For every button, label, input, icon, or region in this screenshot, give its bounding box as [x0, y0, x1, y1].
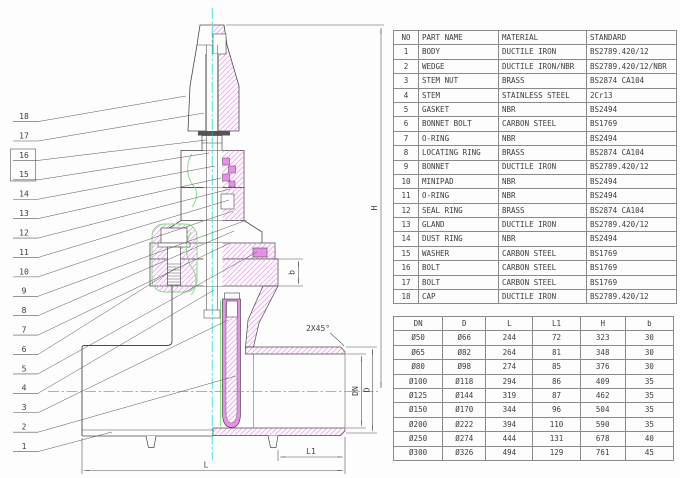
- callout-label: 4: [22, 384, 27, 393]
- dims-table-cell: 590: [580, 417, 625, 431]
- parts-table-row: 16BOLTCARBON STEELBS1769: [394, 261, 677, 275]
- dims-table-header-cell: D: [443, 317, 486, 331]
- dims-table-cell: Ø50: [394, 331, 443, 345]
- cap-inner-notch: [213, 34, 226, 54]
- parts-table-row: 3STEM NUTBRASSBS2874 CA104: [394, 74, 677, 88]
- parts-table-header-cell: NO: [394, 31, 419, 45]
- dims-table-cell: 72: [533, 331, 580, 345]
- dims-table-cell: Ø326: [443, 446, 486, 460]
- parts-table-row: 2WEDGEDUCTILE IRON/NBRBS2789.420/12/NBR: [394, 59, 677, 73]
- dims-table-cell: Ø82: [443, 345, 486, 359]
- parts-table-cell: BRASS: [499, 203, 587, 217]
- callout-label: 5: [22, 364, 27, 373]
- parts-table-cell: SEAL RING: [419, 203, 499, 217]
- callout-label: 2: [22, 423, 27, 432]
- socket-bottom-wall: [213, 428, 345, 436]
- dims-table-cell: 35: [625, 417, 673, 431]
- parts-table-cell: O-RING: [419, 131, 499, 145]
- parts-table-cell: 9: [394, 160, 419, 174]
- dims-table-cell: Ø222: [443, 417, 486, 431]
- callout-leader-line: [38, 189, 230, 238]
- parts-table-cell: BS1769: [587, 261, 677, 275]
- chamfer-leader: [330, 333, 344, 346]
- parts-table-cell: NBR: [499, 102, 587, 116]
- callout-label: 18: [19, 112, 29, 121]
- callout-label: 6: [22, 345, 27, 354]
- dims-table-cell: 30: [625, 331, 673, 345]
- parts-table-cell: BS1769: [587, 117, 677, 131]
- callout-label: 13: [19, 209, 29, 218]
- parts-table-header-cell: PART NAME: [419, 31, 499, 45]
- dims-table-cell: Ø300: [394, 446, 443, 460]
- dims-table-header-cell: DN: [394, 317, 443, 331]
- dims-table-cell: Ø80: [394, 360, 443, 374]
- parts-table-cell: STEM: [419, 88, 499, 102]
- stem-nut: [227, 301, 238, 317]
- parts-table-header-row: NOPART NAMEMATERIALSTANDARD: [394, 31, 677, 45]
- cap-collar: [198, 131, 230, 136]
- parts-table-cell: BS2789.420/12: [587, 290, 677, 304]
- dims-table-cell: 40: [625, 432, 673, 446]
- dims-table-cell: 131: [533, 432, 580, 446]
- dim-label-L1: L1: [306, 447, 316, 456]
- parts-table-cell: NBR: [499, 232, 587, 246]
- wedge: [221, 293, 241, 428]
- parts-table-cell: 1: [394, 45, 419, 59]
- dims-table-cell: Ø125: [394, 388, 443, 402]
- parts-table-cell: CARBON STEEL: [499, 117, 587, 131]
- parts-table-cell: DUCTILE IRON: [499, 160, 587, 174]
- o-ring-lower: [229, 181, 235, 187]
- dims-table-cell: 494: [486, 446, 533, 460]
- dims-table-header-cell: H: [580, 317, 625, 331]
- parts-table-cell: DUCTILE IRON: [499, 45, 587, 59]
- dims-table-cell: Ø65: [394, 345, 443, 359]
- parts-table-cell: BS1769: [587, 275, 677, 289]
- chamfer-note: 2X45°: [306, 324, 330, 333]
- callout-15: 15: [13, 153, 209, 180]
- parts-table-cell: 11: [394, 189, 419, 203]
- parts-table-cell: GASKET: [419, 102, 499, 116]
- dims-table-row: Ø150Ø1703449650435: [394, 403, 674, 417]
- dims-table-cell: 45: [625, 446, 673, 460]
- dim-label-b: b: [288, 270, 297, 275]
- callout-label: 7: [22, 326, 27, 335]
- callout-leader-line: [38, 290, 214, 393]
- parts-list-table: NOPART NAMEMATERIALSTANDARD1BODYDUCTILE …: [393, 30, 677, 304]
- callout-17: 17: [13, 113, 204, 141]
- dims-table-cell: 761: [580, 446, 625, 460]
- dims-table-header-cell: b: [625, 317, 673, 331]
- dims-table-cell: 85: [533, 360, 580, 374]
- callout-label: 9: [22, 287, 27, 296]
- dims-table-cell: 348: [580, 345, 625, 359]
- body-foot-left: [146, 436, 156, 448]
- parts-table-header-cell: MATERIAL: [499, 31, 587, 45]
- parts-table-cell: BONNET BOLT: [419, 117, 499, 131]
- parts-table-cell: CARBON STEEL: [499, 261, 587, 275]
- dims-table-row: Ø50Ø662447232330: [394, 331, 674, 345]
- valve-cap: [188, 25, 239, 136]
- callout-label: 10: [19, 267, 29, 276]
- dims-table-row: Ø80Ø982748537630: [394, 360, 674, 374]
- callout-leader-line: [38, 243, 230, 335]
- parts-table-cell: BS2494: [587, 174, 677, 188]
- dims-table-cell: Ø118: [443, 374, 486, 388]
- parts-table-cell: BS2494: [587, 131, 677, 145]
- callout-leader-line: [38, 432, 112, 452]
- parts-table-row: 11O-RINGNBRBS2494: [394, 189, 677, 203]
- dims-table-cell: Ø274: [443, 432, 486, 446]
- parts-table-cell: NBR: [499, 174, 587, 188]
- valve-section-drawing: H b DN D L1 L 2X45° 18171615141312111098…: [0, 0, 390, 478]
- callout-label: 15: [19, 170, 29, 179]
- parts-table-cell: BS1769: [587, 246, 677, 260]
- callout-2: 2: [13, 376, 236, 432]
- parts-table-cell: 6: [394, 117, 419, 131]
- dims-table-row: Ø100Ø1182948640935: [394, 374, 674, 388]
- dims-table-cell: Ø170: [443, 403, 486, 417]
- parts-table-cell: BS2874 CA104: [587, 74, 677, 88]
- parts-table-cell: DUCTILE IRON/NBR: [499, 59, 587, 73]
- parts-table-row: 7O-RINGNBRBS2494: [394, 131, 677, 145]
- dims-table-cell: 462: [580, 388, 625, 402]
- dims-table-cell: Ø250: [394, 432, 443, 446]
- parts-table-cell: BS2494: [587, 232, 677, 246]
- parts-table-cell: MINIPAD: [419, 174, 499, 188]
- callout-3: 3: [13, 320, 228, 413]
- dims-table-cell: 110: [533, 417, 580, 431]
- callout-12: 12: [13, 189, 230, 238]
- dims-table-cell: 376: [580, 360, 625, 374]
- dims-table-cell: 344: [486, 403, 533, 417]
- parts-table-row: 14DUST RINGNBRBS2494: [394, 232, 677, 246]
- dims-table-row: Ø300Ø32649412976145: [394, 446, 674, 460]
- dims-table-cell: 96: [533, 403, 580, 417]
- parts-table-cell: 17: [394, 275, 419, 289]
- callout-16: 16: [13, 140, 206, 160]
- dims-table-cell: 323: [580, 331, 625, 345]
- parts-table-cell: BRASS: [499, 146, 587, 160]
- callout-leader-line: [38, 320, 228, 413]
- parts-table-cell: 7: [394, 131, 419, 145]
- socket-top-wall: [246, 347, 346, 354]
- parts-table-cell: DUST RING: [419, 232, 499, 246]
- dims-table-cell: Ø200: [394, 417, 443, 431]
- parts-table-row: 18CAPDUCTILE IRONBS2789.420/12: [394, 290, 677, 304]
- dims-table-row: Ø65Ø822648134830: [394, 345, 674, 359]
- dimension-chart-table: DNDLL1HbØ50Ø662447232330Ø65Ø822648134830…: [393, 316, 674, 461]
- dims-table-cell: 264: [486, 345, 533, 359]
- callout-label: 14: [19, 190, 29, 199]
- parts-table-cell: 4: [394, 88, 419, 102]
- seal-ring: [223, 174, 230, 181]
- dims-table-header-cell: L: [486, 317, 533, 331]
- wedge-core: [226, 303, 237, 423]
- parts-table-cell: BS2789.420/12/NBR: [587, 59, 677, 73]
- callout-label: 16: [19, 151, 29, 160]
- bolt-shank: [168, 247, 181, 285]
- parts-table-cell: WEDGE: [419, 59, 499, 73]
- dims-table-cell: Ø144: [443, 388, 486, 402]
- body-foot-right: [268, 436, 278, 448]
- dims-table-cell: 30: [625, 345, 673, 359]
- dims-table-cell: 444: [486, 432, 533, 446]
- dims-table-cell: 504: [580, 403, 625, 417]
- dims-table-cell: Ø66: [443, 331, 486, 345]
- parts-table-cell: BS2494: [587, 102, 677, 116]
- dims-table-cell: 35: [625, 374, 673, 388]
- parts-table-row: 15WASHERCARBON STEELBS1769: [394, 246, 677, 260]
- parts-table-row: 1BODYDUCTILE IRONBS2789.420/12: [394, 45, 677, 59]
- parts-table-row: 13GLANDDUCTILE IRONBS2789.420/12: [394, 218, 677, 232]
- parts-table-cell: 16: [394, 261, 419, 275]
- o-ring-upper: [229, 166, 236, 173]
- dims-table-cell: 35: [625, 388, 673, 402]
- parts-table-cell: 10: [394, 174, 419, 188]
- dims-table-row: Ø125Ø1443198746235: [394, 388, 674, 402]
- dims-table-header-cell: L1: [533, 317, 580, 331]
- parts-table-cell: 13: [394, 218, 419, 232]
- dim-label-L: L: [204, 461, 209, 470]
- dims-table-cell: 678: [580, 432, 625, 446]
- callout-label: 8: [22, 306, 27, 315]
- parts-table-cell: BS2789.420/12: [587, 160, 677, 174]
- parts-table-cell: 18: [394, 290, 419, 304]
- dims-table-cell: 81: [533, 345, 580, 359]
- callout-leader-line: [38, 96, 186, 122]
- parts-table-cell: BS2789.420/12: [587, 45, 677, 59]
- callout-1: 1: [13, 432, 112, 452]
- parts-table-cell: STAINLESS STEEL: [499, 88, 587, 102]
- parts-table-cell: BONNET: [419, 160, 499, 174]
- dims-table-row: Ø250Ø27444413167840: [394, 432, 674, 446]
- dims-table-cell: Ø150: [394, 403, 443, 417]
- parts-table-cell: BOLT: [419, 261, 499, 275]
- parts-table-row: 9BONNETDUCTILE IRONBS2789.420/12: [394, 160, 677, 174]
- dims-table-cell: 274: [486, 360, 533, 374]
- callout-label: 17: [19, 131, 29, 140]
- parts-table-cell: DUCTILE IRON: [499, 218, 587, 232]
- dims-table-header-row: DNDLL1Hb: [394, 317, 674, 331]
- parts-table-cell: 5: [394, 102, 419, 116]
- parts-table-cell: BS2789.420/12: [587, 218, 677, 232]
- bolt-head: [161, 228, 187, 243]
- dim-label-H: H: [370, 205, 379, 210]
- parts-table-cell: BS2874 CA104: [587, 203, 677, 217]
- dims-table-cell: 294: [486, 374, 533, 388]
- parts-table-row: 5GASKETNBRBS2494: [394, 102, 677, 116]
- callout-18: 18: [13, 96, 186, 122]
- parts-table-row: 8LOCATING RINGBRASSBS2874 CA104: [394, 146, 677, 160]
- parts-table-cell: BS2494: [587, 189, 677, 203]
- parts-table-header-cell: STANDARD: [587, 31, 677, 45]
- dims-table-cell: 87: [533, 388, 580, 402]
- parts-table-row: 4STEMSTAINLESS STEEL2Cr13: [394, 88, 677, 102]
- callout-label: 1: [22, 442, 27, 451]
- callout-label: 12: [19, 228, 29, 237]
- dims-table-cell: Ø98: [443, 360, 486, 374]
- parts-table-cell: BOLT: [419, 275, 499, 289]
- callout-leader-line: [38, 268, 176, 355]
- dims-table-row: Ø200Ø22239411059035: [394, 417, 674, 431]
- parts-table-cell: 8: [394, 146, 419, 160]
- parts-table-cell: STEM NUT: [419, 74, 499, 88]
- drawing-sheet: H b DN D L1 L 2X45° 18171615141312111098…: [0, 0, 680, 478]
- parts-table-cell: WASHER: [419, 246, 499, 260]
- parts-table-cell: 15: [394, 246, 419, 260]
- parts-table-cell: BRASS: [499, 74, 587, 88]
- parts-table-cell: GLAND: [419, 218, 499, 232]
- callout-label: 11: [19, 248, 29, 257]
- parts-table-cell: 2Cr13: [587, 88, 677, 102]
- parts-table-cell: CARBON STEEL: [499, 275, 587, 289]
- dims-table-cell: 319: [486, 388, 533, 402]
- dims-table-cell: 244: [486, 331, 533, 345]
- parts-table-row: 12SEAL RINGBRASSBS2874 CA104: [394, 203, 677, 217]
- parts-table-cell: O-RING: [419, 189, 499, 203]
- parts-table-cell: NBR: [499, 189, 587, 203]
- locating-ring: [221, 194, 234, 209]
- dust-ring: [223, 158, 230, 165]
- parts-table-cell: CARBON STEEL: [499, 246, 587, 260]
- dims-table-cell: 409: [580, 374, 625, 388]
- callout-label: 3: [22, 403, 27, 412]
- parts-table-cell: CAP: [419, 290, 499, 304]
- parts-table-cell: LOCATING RING: [419, 146, 499, 160]
- parts-table-row: 10MINIPADNBRBS2494: [394, 174, 677, 188]
- parts-table-cell: 14: [394, 232, 419, 246]
- dims-table-cell: 86: [533, 374, 580, 388]
- dims-table-cell: 35: [625, 403, 673, 417]
- parts-table-cell: BODY: [419, 45, 499, 59]
- callout-leader-line: [38, 376, 236, 432]
- dims-table-cell: 30: [625, 360, 673, 374]
- parts-table-row: 17BOLTCARBON STEELBS1769: [394, 275, 677, 289]
- parts-table-cell: NBR: [499, 131, 587, 145]
- gasket: [253, 248, 267, 257]
- dim-label-D: D: [363, 387, 372, 392]
- dims-table-cell: 129: [533, 446, 580, 460]
- dim-label-DN: DN: [351, 386, 360, 396]
- parts-table-row: 6BONNET BOLTCARBON STEELBS1769: [394, 117, 677, 131]
- parts-table-cell: 2: [394, 59, 419, 73]
- parts-table-cell: DUCTILE IRON: [499, 290, 587, 304]
- dims-table-cell: 394: [486, 417, 533, 431]
- parts-table-cell: 12: [394, 203, 419, 217]
- dims-table-cell: Ø100: [394, 374, 443, 388]
- parts-table-cell: 3: [394, 74, 419, 88]
- parts-table-cell: BS2874 CA104: [587, 146, 677, 160]
